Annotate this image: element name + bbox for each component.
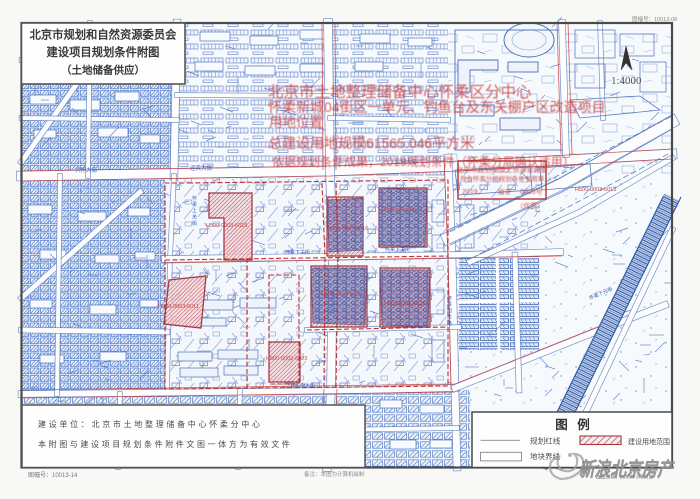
svg-text:怀柔上关街: 怀柔上关街: [192, 195, 197, 227]
svg-text:迎宾大街: 迎宾大街: [190, 164, 213, 172]
svg-text:H500-0003-6015: H500-0003-6015: [206, 223, 247, 229]
svg-text:H500-0003-6018: H500-0003-6018: [381, 208, 422, 214]
svg-text:备注：本图为计算机绘制: 备注：本图为计算机绘制: [304, 470, 365, 478]
svg-text:2019: 2019: [462, 189, 478, 196]
svg-text:0003号: 0003号: [520, 188, 543, 196]
svg-text:北京市规划和国土资源管理委: 北京市规划和国土资源管理委: [457, 165, 548, 174]
svg-text:怀柔下关街: 怀柔下关街: [385, 246, 410, 253]
svg-text:用地位置: 用地位置: [269, 115, 323, 130]
svg-text:总建设用地规模61565.046平方米: 总建设用地规模61565.046平方米: [268, 135, 474, 151]
svg-text:建设用地范围: 建设用地范围: [628, 437, 670, 446]
svg-text:（土地储备供应）: （土地储备供应）: [61, 64, 145, 77]
svg-text:规划红线: 规划红线: [530, 436, 561, 446]
svg-text:地块界线: 地块界线: [530, 451, 560, 461]
svg-text:1:4000: 1:4000: [611, 75, 642, 87]
svg-text:怀柔南大街: 怀柔南大街: [290, 382, 315, 389]
svg-text:怀柔阳关路: 怀柔阳关路: [447, 295, 452, 327]
svg-text:建设项目规划条件附图: 建设项目规划条件附图: [46, 45, 160, 59]
svg-text:员会怀柔分局规划条件专用章: 员会怀柔分局规划条件专用章: [460, 174, 545, 183]
svg-text:怀柔新城04街区一单元、钓鱼台及东关棚户区改造项目: 怀柔新城04街区一单元、钓鱼台及东关棚户区改造项目: [268, 99, 606, 115]
svg-text:H500-0003-6013: H500-0003-6013: [575, 187, 616, 193]
svg-text:H500-0003-6016: H500-0003-6016: [327, 226, 368, 232]
svg-text:H500-0003-6025: H500-0003-6025: [384, 301, 425, 307]
svg-text:H500-0003-6020: H500-0003-6020: [321, 292, 362, 298]
svg-text:新浪北京房产: 新浪北京房产: [579, 459, 675, 481]
svg-text:图 例: 图 例: [555, 417, 592, 432]
svg-text:兴怀大街: 兴怀大街: [75, 166, 98, 174]
svg-text:H500-0003-6023: H500-0003-6023: [266, 356, 307, 362]
svg-text:怀柔下关街: 怀柔下关街: [285, 249, 310, 256]
svg-text:本附图与建设项目规划条件附件文图一体方为有效文件: 本附图与建设项目规划条件附件文图一体方为有效文件: [38, 439, 292, 449]
svg-text:编号: 编号: [498, 187, 512, 196]
svg-text:图幅号：10013-14: 图幅号：10013-14: [28, 471, 78, 479]
svg-text:北京市规划和自然资源委员会: 北京市规划和自然资源委员会: [30, 28, 178, 42]
svg-text:（代章）: （代章）: [516, 201, 544, 210]
svg-text:建设单位：北京市土地整理储备中心怀柔分中心: 建设单位：北京市土地整理储备中心怀柔分中心: [38, 419, 263, 429]
svg-text:图幅号：10013-08: 图幅号：10013-08: [632, 15, 677, 23]
svg-text:H500-0003-6011: H500-0003-6011: [158, 304, 199, 310]
